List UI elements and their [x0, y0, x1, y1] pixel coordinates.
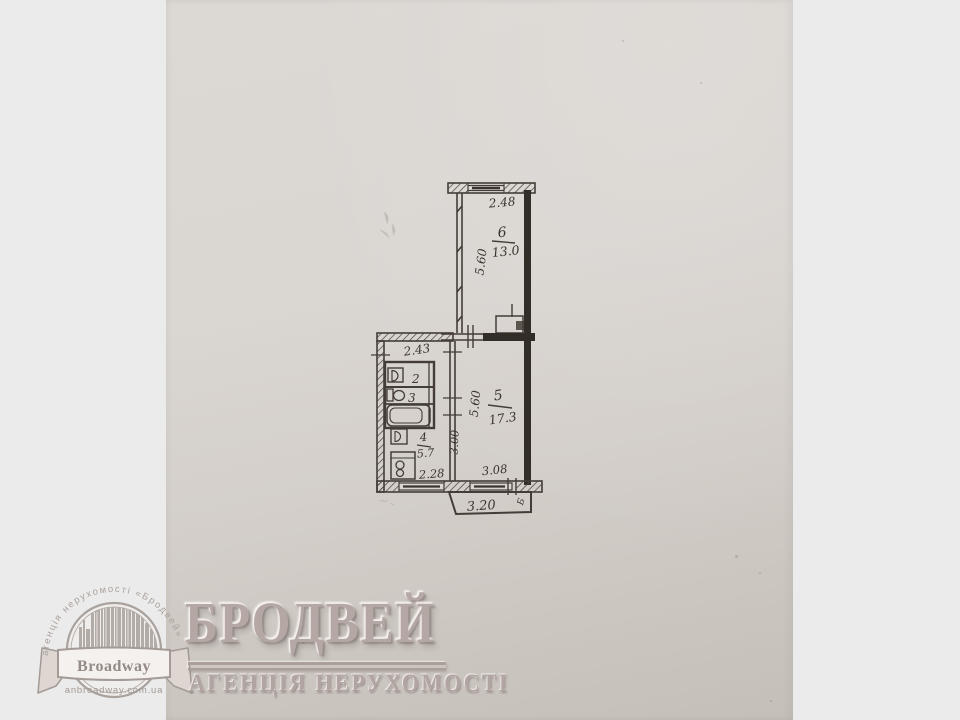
- room6-area: 13.0: [491, 242, 520, 260]
- room6-depth-dim: 5.60: [473, 248, 490, 277]
- room4-depth-dim: 3.00: [447, 430, 461, 455]
- room4-width-dim: 2.28: [417, 466, 445, 482]
- room3-number: 3: [408, 391, 416, 405]
- room6-number: 6: [497, 225, 508, 242]
- room4-area: 5.7: [416, 446, 435, 460]
- balcony-width-dim: 3.20: [466, 498, 496, 515]
- room5-width-dim: 3.08: [481, 462, 508, 479]
- room5-number: 5: [493, 387, 504, 404]
- bathtub-icon: [387, 405, 430, 426]
- watermark-title: БРОДВЕЙ: [185, 594, 436, 652]
- stove-icon: [391, 452, 415, 479]
- wall: [457, 193, 462, 333]
- room4-number: 4: [418, 430, 428, 445]
- room5-area: 17.3: [488, 409, 518, 428]
- watermark-subtitle: АГЕНЦІЯ НЕРУХОМОСТІ: [189, 671, 510, 696]
- emblem-website: anbroadway.com.ua: [65, 685, 163, 696]
- room6-width-dim: 2.48: [487, 194, 516, 210]
- hall-width-dim: 2.43: [402, 341, 432, 359]
- scanned-document-photo: 2.48 6 13.0 5.60 2.43 2 3 4 5.7 3.00 2.2…: [0, 0, 960, 720]
- vent-shaft: [496, 304, 524, 333]
- broadway-emblem: Broadway anbroadway.com.ua агенція нерух…: [38, 583, 192, 697]
- floor-plan: 2.48 6 13.0 5.60 2.43 2 3 4 5.7 3.00 2.2…: [371, 183, 542, 515]
- balcony-mark: Б: [516, 497, 528, 507]
- scan-overlay: 2.48 6 13.0 5.60 2.43 2 3 4 5.7 3.00 2.2…: [0, 0, 960, 720]
- divider-rule: [188, 662, 446, 670]
- wall: [483, 333, 535, 341]
- washbasin-icon: [388, 368, 403, 382]
- room5-depth-dim: 5.60: [467, 389, 484, 417]
- room2-number: 2: [411, 372, 420, 386]
- kitchen-sink-icon: [391, 429, 407, 444]
- wall: [443, 341, 462, 481]
- wall: [377, 341, 384, 492]
- toilet-icon: [387, 389, 405, 401]
- emblem-banner-text: Broadway: [77, 658, 151, 675]
